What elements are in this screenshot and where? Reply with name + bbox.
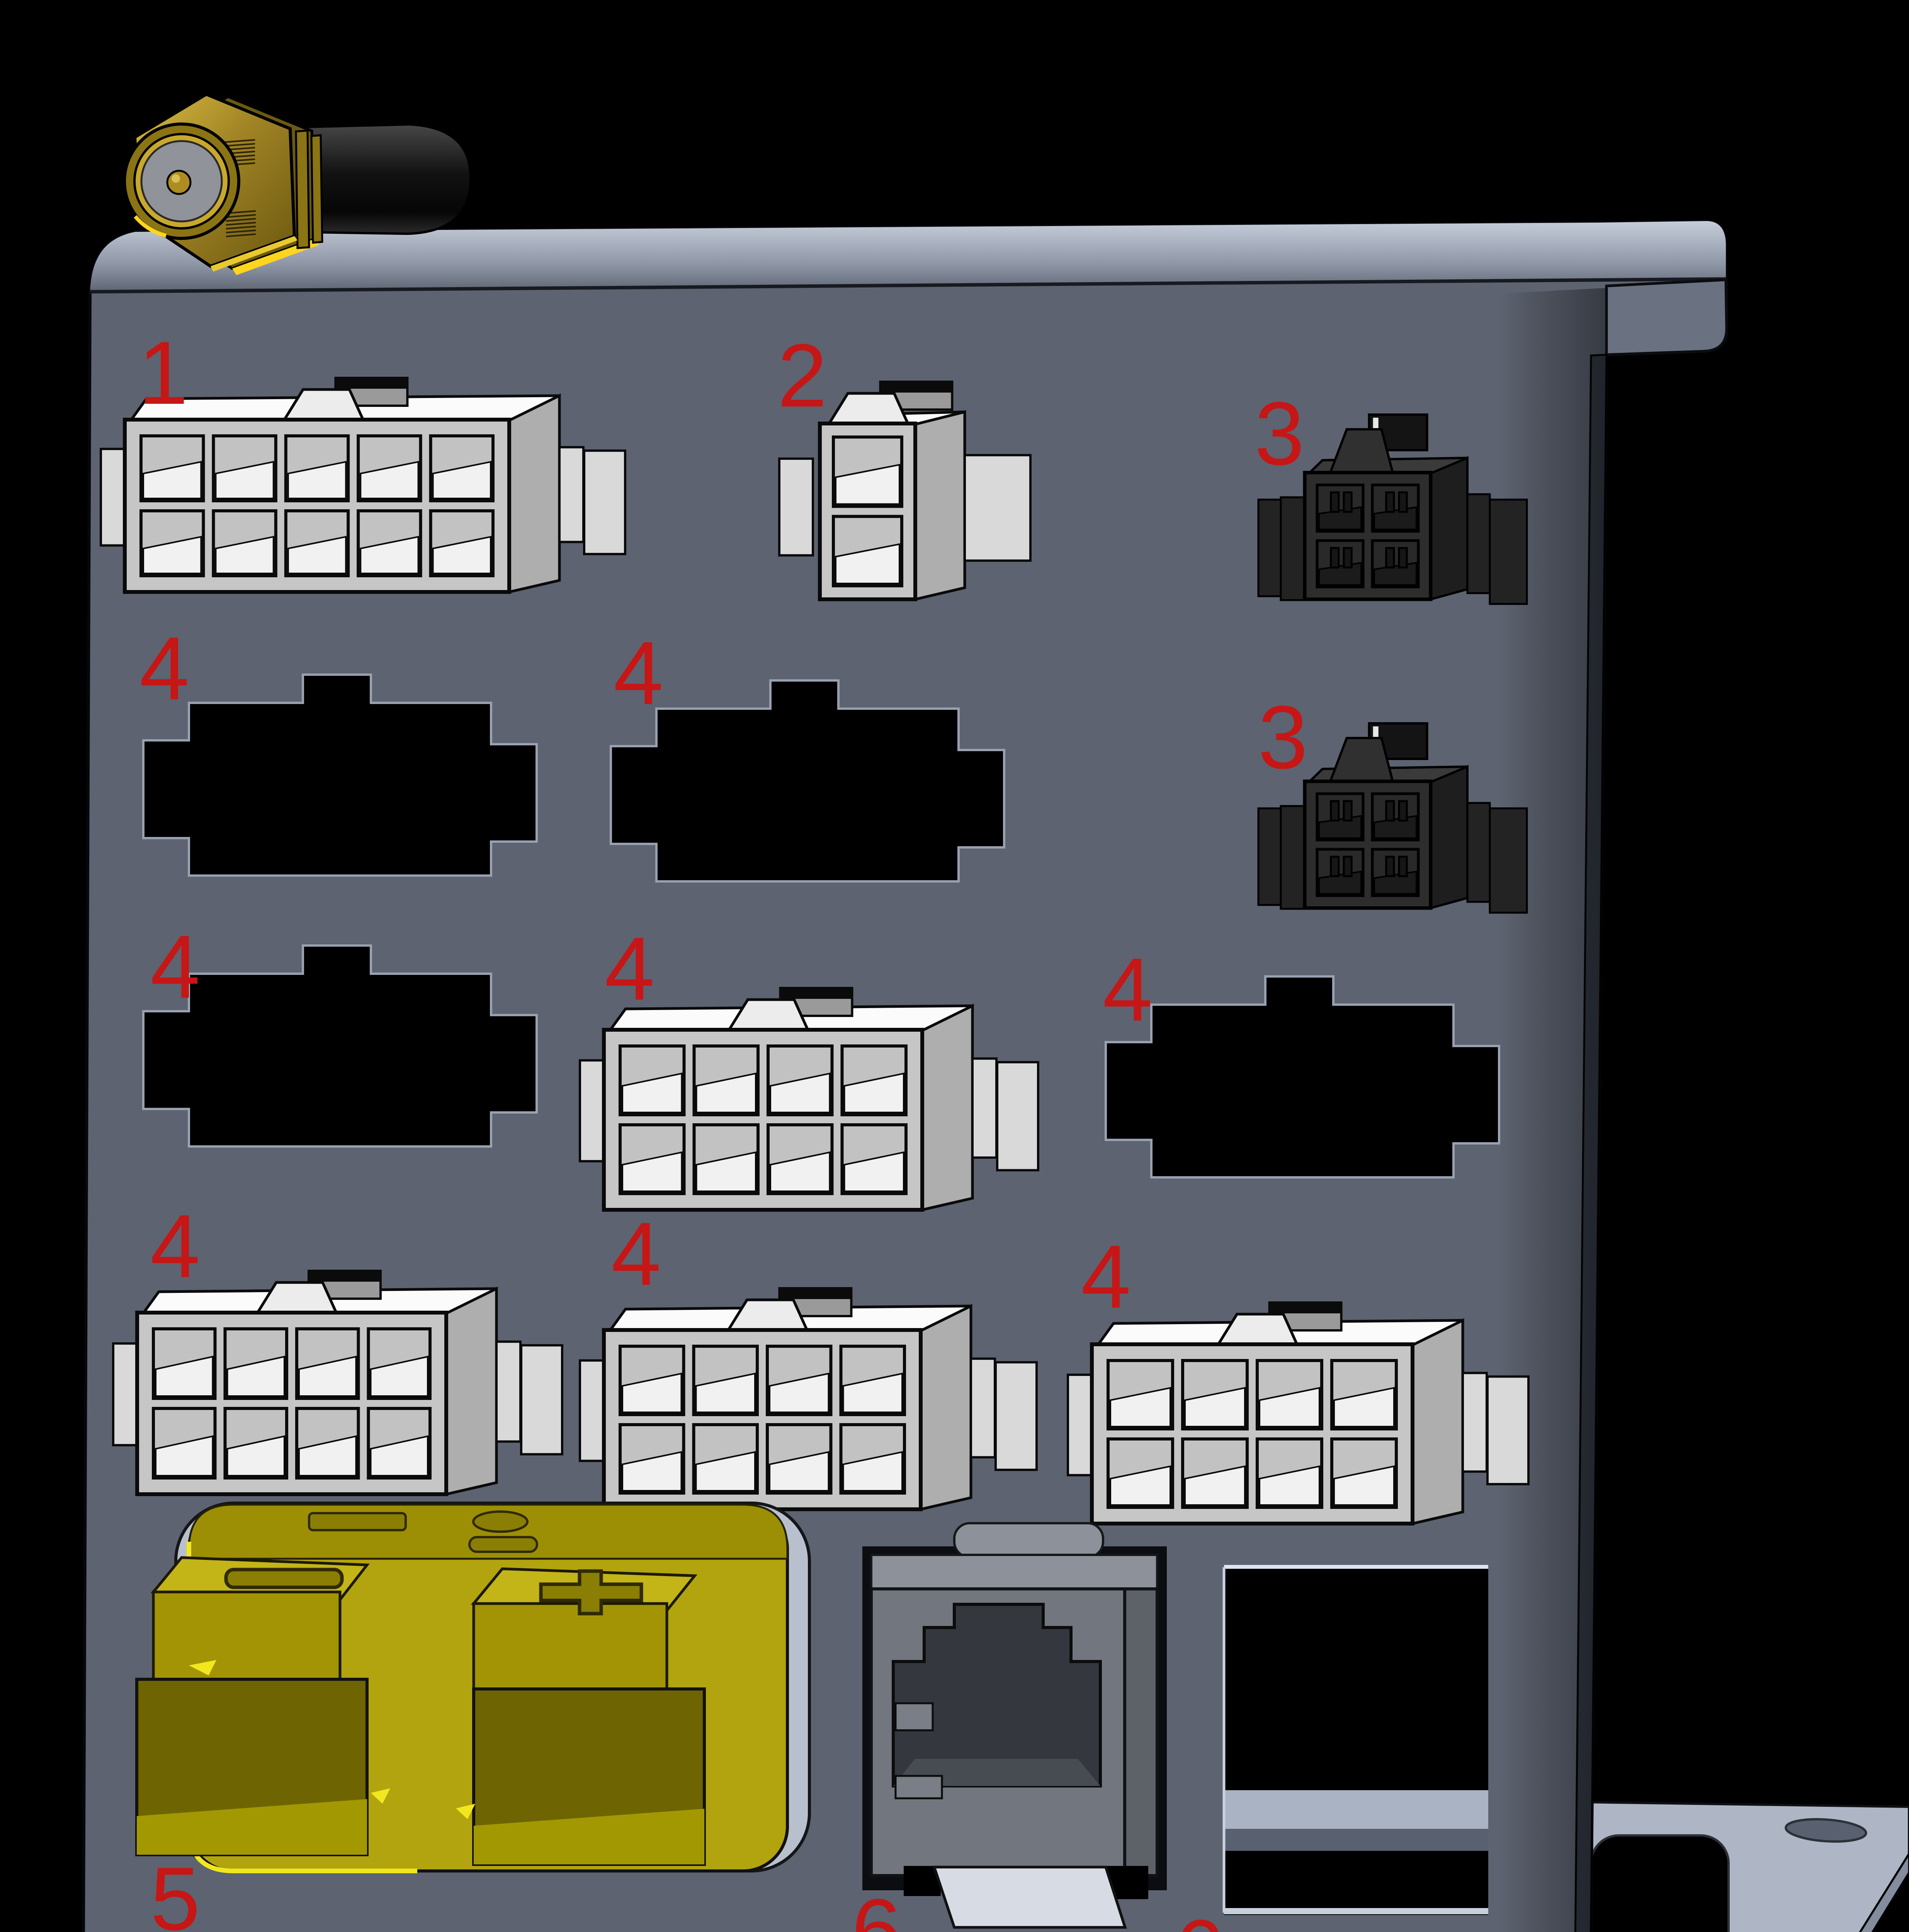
top-slot [469, 1537, 537, 1552]
side-wing [101, 449, 124, 546]
housing-side-face [1431, 767, 1467, 908]
cutout-top-edge [1224, 1565, 1488, 1569]
terminal-slot [1331, 548, 1339, 567]
lock-washer [311, 135, 322, 243]
terminal-slot [1344, 548, 1351, 567]
callout-6b-label: 6 [1174, 1901, 1224, 1932]
terminal-slot [1344, 801, 1351, 820]
latch-catch-cap [780, 988, 852, 999]
flange-shadow-band [1224, 1829, 1488, 1851]
side-wing [1490, 500, 1527, 604]
terminal-slot [1399, 492, 1407, 512]
terminal-slot [1386, 801, 1394, 820]
cutout-opening [611, 680, 1004, 881]
cutout-opening [1106, 976, 1499, 1177]
side-wing [521, 1345, 562, 1454]
side-wing [1281, 806, 1304, 909]
flange-seen-through [1224, 1790, 1488, 1829]
side-wing [997, 1062, 1038, 1170]
connector-8-pin-row4-right [1068, 1303, 1528, 1524]
callout-3a-label: 3 [1255, 384, 1304, 484]
center-pin-glint [172, 174, 180, 183]
housing-side-face [509, 396, 559, 592]
side-wing [965, 455, 1030, 561]
callout-4c-label: 4 [150, 917, 200, 1017]
connector-8-pin-row4-mid [580, 1288, 1037, 1509]
housing-side-face [1431, 458, 1467, 599]
connector-cutout-row3-left [143, 946, 537, 1146]
terminal-slot [1386, 857, 1394, 876]
top-hole [473, 1512, 527, 1532]
terminal-slot [1331, 801, 1339, 820]
housing-side-face [921, 1306, 971, 1509]
side-wing [559, 447, 583, 542]
render-canvas: 1 2 3 4 4 3 4 4 4 4 4 4 5 6 6 [0, 0, 1909, 1932]
modular-jack [862, 1523, 1167, 1927]
center-pin [167, 171, 190, 194]
side-wing [779, 459, 813, 555]
cutout-opening [143, 946, 537, 1146]
callout-4f-label: 4 [150, 1196, 200, 1296]
cutout-bottom-edge [1224, 1908, 1488, 1914]
callout-4d-label: 4 [605, 919, 654, 1019]
side-wing [496, 1342, 520, 1442]
latch-catch-cap [309, 1271, 381, 1282]
callout-4g-label: 4 [611, 1204, 661, 1304]
side-wing [580, 1060, 603, 1161]
jack-side-face [1125, 1589, 1157, 1876]
housing-side-face [1413, 1320, 1463, 1524]
terminal-slot [1399, 548, 1407, 567]
flange-cutout [1591, 1835, 1729, 1932]
terminal-slot [1344, 492, 1351, 512]
callout-4a-label: 4 [139, 619, 189, 719]
callout-4b-label: 4 [614, 623, 663, 723]
housing-side-face [922, 1006, 972, 1210]
cutout-opening [143, 675, 537, 876]
terminal-slot [1331, 857, 1339, 876]
side-wing [1467, 494, 1490, 593]
housing-side-face [446, 1289, 496, 1494]
connector-cutout-row2-mid [611, 680, 1004, 881]
callout-6a-label: 6 [852, 1881, 901, 1932]
side-wing [1068, 1375, 1091, 1475]
side-wing [1463, 1373, 1487, 1471]
lock-washer [296, 131, 309, 248]
side-wing [1467, 803, 1490, 902]
square-cutout [1224, 1565, 1488, 1915]
mounting-flange [1587, 1802, 1909, 1932]
housing-side-face [915, 412, 965, 599]
terminal-slot [1386, 548, 1394, 567]
connector-8-pin-row4-left [113, 1271, 562, 1494]
connector-cutout-row2-left [143, 675, 537, 876]
side-wing [1490, 808, 1527, 913]
panel-corner-tab [1606, 280, 1727, 355]
callout-4e-label: 4 [1103, 940, 1153, 1040]
side-wing [113, 1344, 136, 1445]
jack-contact-tab [896, 1776, 942, 1798]
callout-5-label: 5 [150, 1849, 200, 1932]
side-wing [1258, 500, 1281, 596]
jack-rear-ear [954, 1523, 1103, 1557]
side-wing [580, 1361, 603, 1461]
jack-bottom-flap [934, 1867, 1125, 1927]
side-wing [971, 1359, 995, 1457]
minus-marking [226, 1570, 342, 1587]
jack-contact-tab [896, 1703, 933, 1730]
terminal-slot [1399, 801, 1407, 820]
terminal-slot [1386, 492, 1394, 512]
side-wing [1281, 497, 1304, 600]
jack-top-face [871, 1555, 1157, 1589]
callout-4h-label: 4 [1081, 1227, 1131, 1327]
cutout-opening [1224, 1565, 1488, 1915]
power-connector-2-pole [137, 1503, 809, 1871]
latch-catch-cap [335, 378, 407, 389]
callout-1-label: 1 [138, 323, 188, 423]
terminal-slot [1399, 857, 1407, 876]
callout-2-label: 2 [777, 326, 827, 426]
callout-3b-label: 3 [1258, 687, 1308, 787]
latch-catch-cap [1270, 1303, 1341, 1313]
latch-catch-cap [779, 1288, 851, 1299]
side-wing [972, 1059, 996, 1158]
side-wing [1487, 1377, 1528, 1484]
terminal-slot [1344, 857, 1351, 876]
connector-cutout-row3-right [1106, 976, 1499, 1177]
latch-catch-cap [880, 382, 952, 393]
side-wing [584, 451, 625, 554]
top-footprint [309, 1513, 406, 1530]
terminal-slot [1331, 492, 1339, 512]
jack-opening [893, 1604, 1100, 1786]
side-wing [1258, 808, 1281, 905]
connector-8-pin-row3-mid [580, 988, 1038, 1210]
side-wing [996, 1362, 1037, 1470]
